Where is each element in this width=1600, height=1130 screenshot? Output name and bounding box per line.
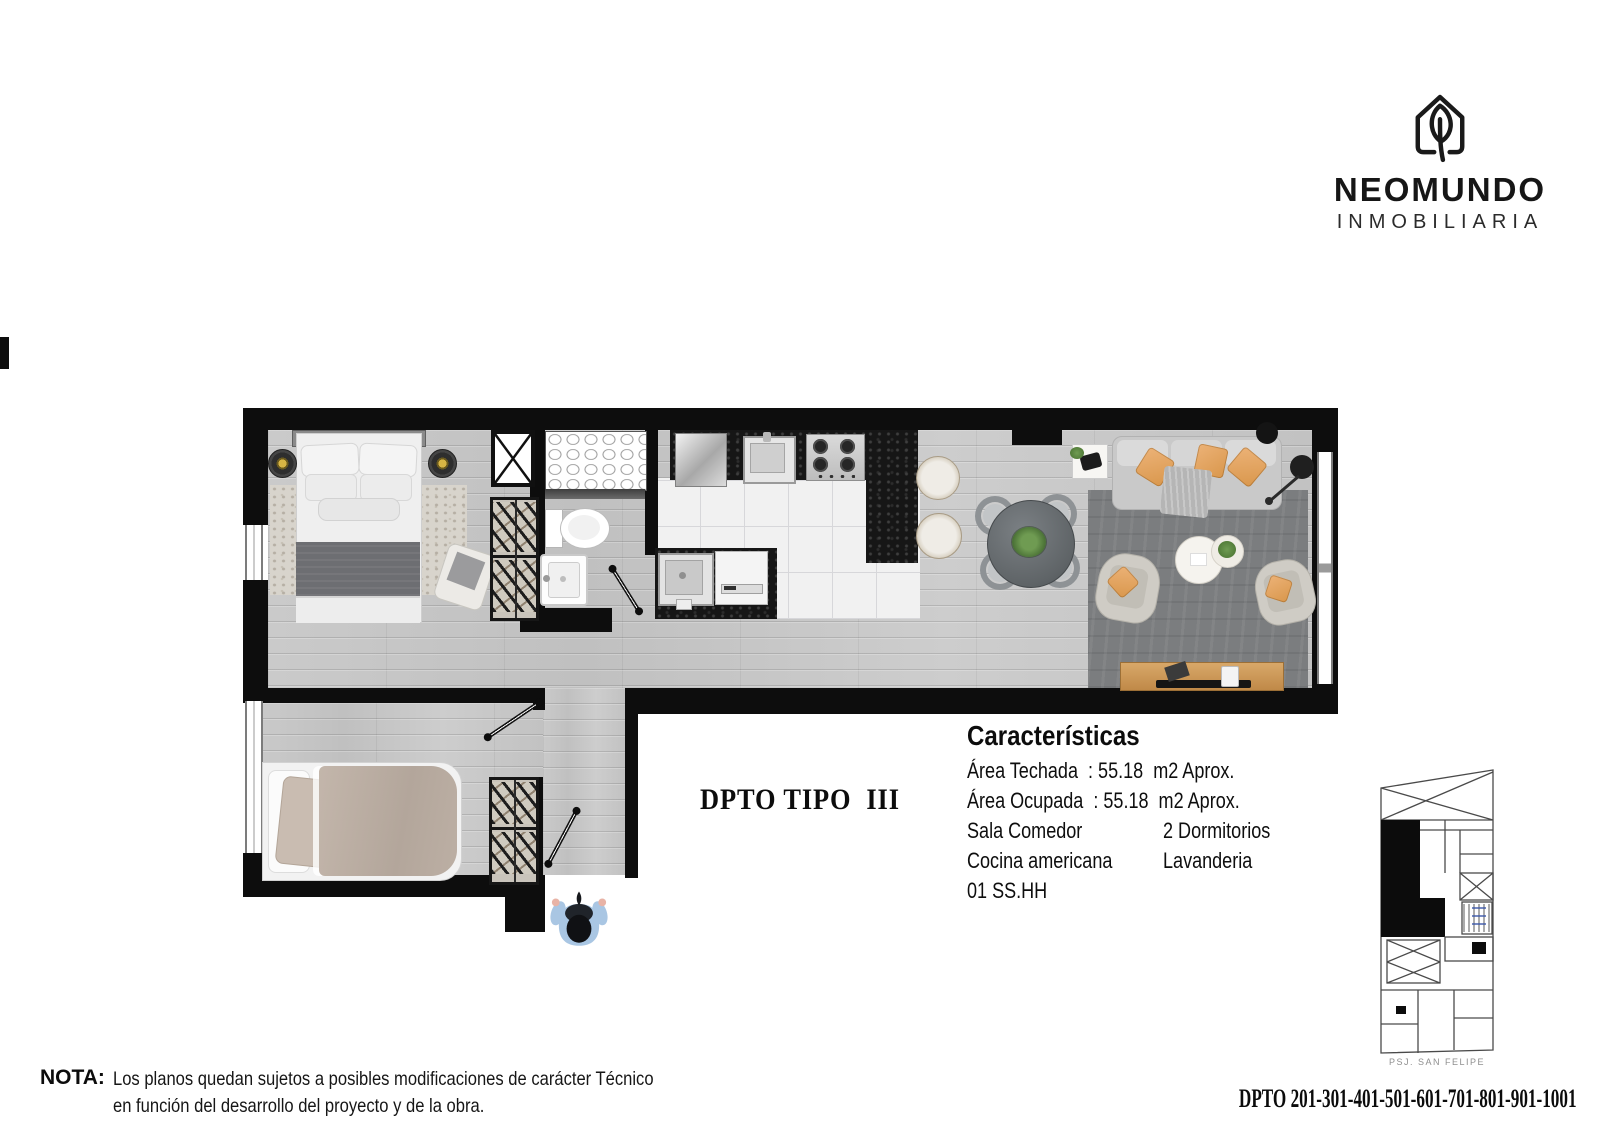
- side-table: [1072, 444, 1108, 479]
- wall-left-mid: [243, 580, 268, 690]
- note-line1: Los planos quedan sujetos a posibles mod…: [113, 1066, 654, 1093]
- bed-pillow: [305, 474, 357, 501]
- sink-basin: [750, 443, 785, 473]
- note-block: NOTA: Los planos quedan sujetos a posibl…: [40, 1066, 749, 1120]
- wall-bedroom2-top: [243, 688, 533, 703]
- window-right: [1317, 452, 1333, 684]
- stove-knobs: [815, 475, 855, 478]
- char-lavanderia: Lavanderia: [1163, 848, 1252, 874]
- char-area-techada: Área Techada : 55.18 m2 Aprox.: [967, 758, 1234, 784]
- char-area-ocupada: Área Ocupada : 55.18 m2 Aprox.: [967, 788, 1240, 814]
- wall-lamp-icon: [428, 449, 457, 478]
- kitchen-sink: [743, 436, 796, 484]
- wall-pillar: [1012, 428, 1062, 445]
- note-label: NOTA:: [40, 1066, 105, 1090]
- burner-icon: [813, 439, 828, 454]
- coffee-table-small: [1211, 535, 1244, 568]
- console-vase: [1221, 666, 1239, 687]
- plant-centerpiece: [1012, 527, 1046, 557]
- edge-artifact: [0, 337, 9, 369]
- characteristics-block: Características Área Techada : 55.18 m2 …: [967, 720, 1387, 908]
- toilet-bowl: [560, 508, 610, 549]
- bed-blanket: [296, 542, 420, 596]
- person-figure: [548, 890, 610, 952]
- wall-left-upper: [243, 408, 268, 525]
- char-dormitorios: 2 Dormitorios: [1163, 818, 1270, 844]
- characteristics-row: Cocina americana Lavanderia: [967, 848, 1387, 878]
- floor-lamp: [1255, 420, 1315, 510]
- wall-corridor-right: [625, 688, 638, 878]
- characteristics-row: Área Techada : 55.18 m2 Aprox.: [967, 758, 1387, 788]
- characteristics-row: Sala Comedor 2 Dormitorios: [967, 818, 1387, 848]
- drain-icon: [679, 572, 686, 579]
- char-sala-comedor: Sala Comedor: [967, 818, 1082, 844]
- duct-x-icon: [495, 434, 531, 483]
- keyplan-street-label: PSJ. SAN FELIPE: [1376, 1057, 1498, 1067]
- kitchen-peninsula: [866, 430, 918, 563]
- laundry-sink: [658, 553, 714, 606]
- window-left-bedroom1: [245, 525, 263, 580]
- building-keyplan: [1376, 766, 1498, 1054]
- keyplan-drawing: [1376, 766, 1498, 1054]
- toilet-seat: [568, 515, 600, 540]
- bed-pillow: [360, 474, 412, 501]
- closet-bedroom2: [489, 777, 539, 885]
- coffee-table-plant: [1218, 541, 1236, 558]
- bed-sheet-fold: [296, 596, 420, 623]
- faucet-icon: [763, 432, 771, 442]
- burner-icon: [840, 457, 855, 472]
- tv-console: [1120, 662, 1284, 691]
- plan-type-title: DPTO TIPO III: [700, 783, 900, 817]
- bed-lumbar-pillow: [318, 498, 400, 521]
- stove: [806, 434, 865, 481]
- floor-plan: [0, 0, 1600, 1130]
- faucet-icon: [543, 575, 550, 582]
- duct-shaft: [491, 430, 535, 487]
- armchair-cushion: [447, 552, 486, 591]
- window-left-bedroom2: [245, 701, 263, 853]
- bar-stool: [916, 456, 960, 500]
- characteristics-row: 01 SS.HH: [967, 878, 1387, 908]
- shower-floor: [545, 431, 647, 491]
- wall-top: [245, 408, 1338, 430]
- master-closet: [490, 497, 539, 621]
- faucet-icon: [676, 599, 692, 610]
- wall-lamp-icon: [268, 449, 297, 478]
- bathroom-sink: [540, 554, 588, 606]
- table-card: [1190, 553, 1207, 566]
- units-footer: DPTO 201-301-401-501-601-701-801-901-100…: [1239, 1084, 1577, 1114]
- console-decor: [1164, 661, 1190, 682]
- flyer-page: { "brand": { "name": "NEOMUNDO", "subtit…: [0, 0, 1600, 1130]
- sofa-throw-blanket: [1160, 466, 1213, 519]
- shower-curb: [545, 489, 645, 499]
- bed2-blanket: [319, 766, 457, 876]
- char-cocina: Cocina americana: [967, 848, 1112, 874]
- fridge: [675, 433, 727, 487]
- bed-pillow: [300, 443, 360, 478]
- note-line2: en función del desarrollo del proyecto y…: [113, 1093, 484, 1120]
- side-table-plant: [1070, 447, 1084, 459]
- burner-icon: [840, 439, 855, 454]
- washing-machine: [715, 551, 768, 605]
- bed2: [262, 762, 462, 881]
- char-sshh: 01 SS.HH: [967, 878, 1047, 904]
- characteristics-title: Características: [967, 720, 1140, 752]
- bed-pillow: [358, 443, 418, 478]
- wall-bottom-main: [625, 688, 1338, 714]
- bar-stool: [916, 513, 962, 559]
- washer-controls: [724, 586, 736, 590]
- characteristics-row: Área Ocupada : 55.18 m2 Aprox.: [967, 788, 1387, 818]
- drain-icon: [560, 576, 566, 582]
- burner-icon: [813, 457, 828, 472]
